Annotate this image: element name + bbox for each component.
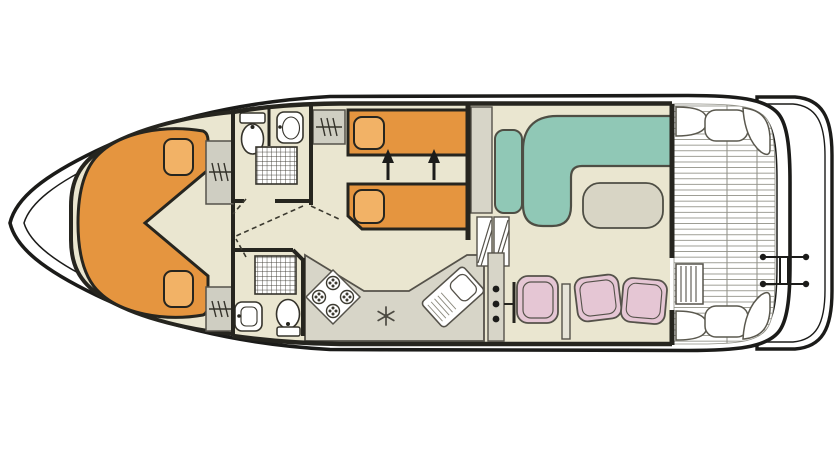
washbasin: [277, 112, 303, 143]
wardrobe: [206, 141, 233, 204]
partition: [562, 284, 570, 339]
dining-chair: [620, 277, 668, 325]
pillow: [164, 271, 193, 307]
deck-locker-top: [705, 110, 748, 141]
boat-floor-plan: [0, 0, 837, 450]
pillow: [354, 190, 384, 223]
shower: [255, 256, 296, 294]
shower: [256, 147, 297, 184]
deck-locker-bottom: [705, 306, 748, 337]
deck-ladder: [676, 264, 703, 304]
wardrobe: [206, 287, 233, 331]
helm-seat: [517, 276, 558, 323]
toilet: [277, 300, 301, 337]
dining-chair: [573, 273, 622, 322]
side-seat: [495, 130, 522, 213]
aft-deck: [674, 104, 775, 344]
pillow: [354, 117, 384, 149]
helm-console: [471, 107, 492, 213]
floor-plan-canvas: [0, 0, 837, 450]
pillow: [164, 139, 193, 175]
washbasin: [235, 302, 262, 331]
wardrobe: [313, 110, 345, 144]
bow-cabin: [71, 112, 233, 334]
control-column: [488, 253, 504, 341]
saloon-table: [583, 183, 663, 228]
